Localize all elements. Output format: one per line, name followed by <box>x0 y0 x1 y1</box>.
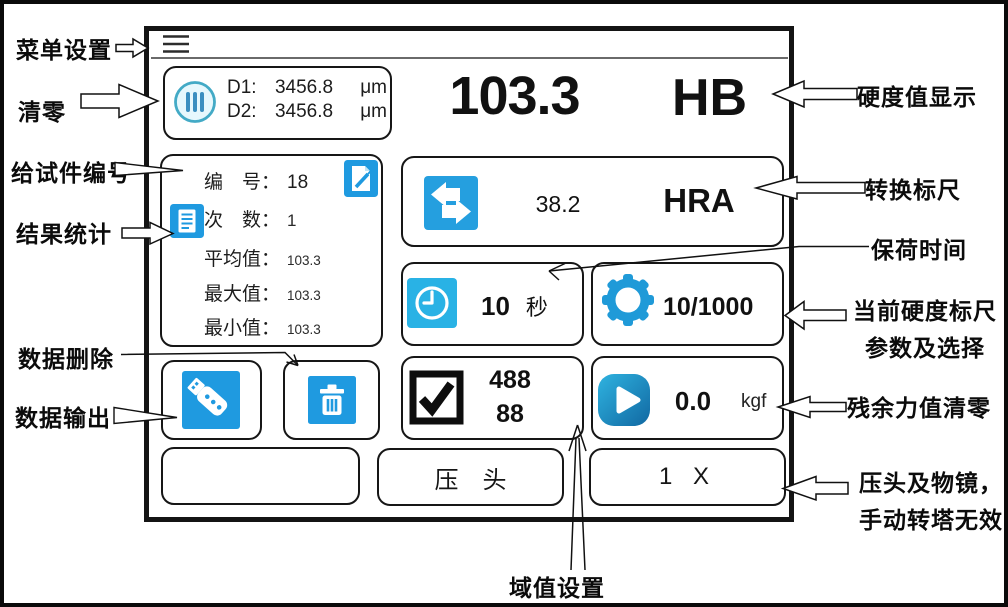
average-label: 平均值： <box>204 244 280 271</box>
threshold-panel[interactable]: 488 88 <box>401 356 584 440</box>
annotation-residual-force: 残余力值清零 <box>847 389 991 423</box>
annotation-menu-settings: 菜单设置 <box>16 31 112 65</box>
min-value: 103.3 <box>287 322 321 337</box>
conversion-scale-panel[interactable]: 38.2 HRA <box>401 156 784 247</box>
dwell-value: 10 <box>481 291 510 322</box>
annotation-specimen-number: 给试件编号 <box>11 154 131 188</box>
residual-force-value: 0.0 <box>663 386 723 417</box>
conversion-value: 38.2 <box>513 191 603 218</box>
swap-arrows-icon <box>424 176 478 230</box>
document-edit-icon <box>344 160 378 197</box>
d1-row: D1: 3456.8 μm <box>227 77 387 99</box>
annotation-result-stats: 结果统计 <box>16 215 112 249</box>
hamburger-icon <box>161 33 191 55</box>
specimen-number-value: 18 <box>287 172 308 194</box>
max-label: 最大值： <box>204 279 280 306</box>
annotation-indenter-objective-line2: 手动转塔无效 <box>850 502 1008 539</box>
document-icon <box>170 204 204 238</box>
specimen-number-row: 编 号： 18 <box>204 167 308 194</box>
annotated-hardness-tester-screenshot: D1: 3456.8 μm D2: 3456.8 μm 103.3 HB <box>0 0 1008 607</box>
usb-drive-icon <box>182 371 240 429</box>
count-label: 次 数： <box>204 205 280 232</box>
average-value: 103.3 <box>287 253 321 268</box>
objective-button-label: 1 X <box>591 450 784 504</box>
d2-row: D2: 3456.8 μm <box>227 101 387 123</box>
d1-unit: μm <box>343 77 387 99</box>
d2-label: D2: <box>227 101 265 123</box>
dwell-unit: 秒 <box>526 290 548 322</box>
d2-value: 3456.8 <box>265 101 343 123</box>
annotation-conversion-scale: 转换标尺 <box>865 171 961 205</box>
d1-value: 3456.8 <box>265 77 343 99</box>
clock-icon <box>407 278 457 328</box>
annotation-threshold-setting: 域值设置 <box>509 569 605 603</box>
blank-button[interactable] <box>161 447 360 505</box>
max-row: 最大值： 103.3 <box>204 279 321 306</box>
hardness-scale: HB <box>652 68 767 128</box>
conversion-scale: HRA <box>643 182 755 220</box>
count-value: 1 <box>287 211 296 231</box>
min-label: 最小值： <box>204 313 280 340</box>
scale-params-arrow <box>785 302 846 330</box>
scale-parameter-value: 10/1000 <box>663 293 753 322</box>
indenter-button-label: 压 头 <box>379 450 562 504</box>
count-row: 次 数： 1 <box>204 205 296 232</box>
residual-force-panel[interactable]: 0.0 kgf <box>591 356 784 440</box>
annotation-indenter-objective: 压头及物镜， 手动转塔无效 <box>850 465 1008 539</box>
annotation-hardness-display: 硬度值显示 <box>857 78 977 112</box>
annotation-dwell-time: 保荷时间 <box>871 231 967 265</box>
annotation-scale-params: 当前硬度标尺 参数及选择 <box>842 293 1008 367</box>
zero-reset-icon[interactable] <box>172 79 218 125</box>
scale-parameter-panel[interactable]: 10/1000 <box>591 262 784 346</box>
checkbox-checked-icon <box>409 370 464 425</box>
blank-button-label <box>163 449 358 503</box>
trash-icon <box>308 376 356 424</box>
menu-button[interactable] <box>161 33 191 55</box>
d1-label: D1: <box>227 77 265 99</box>
objective-button[interactable]: 1 X <box>589 448 786 506</box>
annotation-indenter-objective-line1: 压头及物镜， <box>850 465 1008 502</box>
annotation-clear-zero: 清零 <box>18 93 66 127</box>
residual-force-unit: kgf <box>741 391 766 413</box>
annotation-scale-params-line2: 参数及选择 <box>842 330 1008 367</box>
diagonal-readout-panel[interactable]: D1: 3456.8 μm D2: 3456.8 μm <box>163 66 392 140</box>
threshold-lower-value: 88 <box>475 400 545 429</box>
threshold-upper-value: 488 <box>475 366 545 395</box>
hardness-value: 103.3 <box>432 65 597 127</box>
data-delete-button[interactable] <box>283 360 380 440</box>
average-row: 平均值： 103.3 <box>204 244 321 271</box>
data-output-button[interactable] <box>161 360 262 440</box>
annotation-scale-params-line1: 当前硬度标尺 <box>842 293 1008 330</box>
d2-unit: μm <box>343 101 387 123</box>
max-value: 103.3 <box>287 288 321 303</box>
edit-number-button[interactable] <box>344 160 378 197</box>
min-row: 最小值： 103.3 <box>204 313 321 340</box>
gear-icon <box>600 272 656 328</box>
dwell-time-panel[interactable]: 10 秒 <box>401 262 584 346</box>
play-icon <box>598 374 650 426</box>
annotation-data-delete: 数据删除 <box>18 340 114 374</box>
statistics-button[interactable] <box>170 204 204 238</box>
annotation-data-output: 数据输出 <box>15 399 111 433</box>
topbar-divider <box>151 57 788 59</box>
specimen-number-label: 编 号： <box>204 167 280 194</box>
indenter-button[interactable]: 压 头 <box>377 448 564 506</box>
